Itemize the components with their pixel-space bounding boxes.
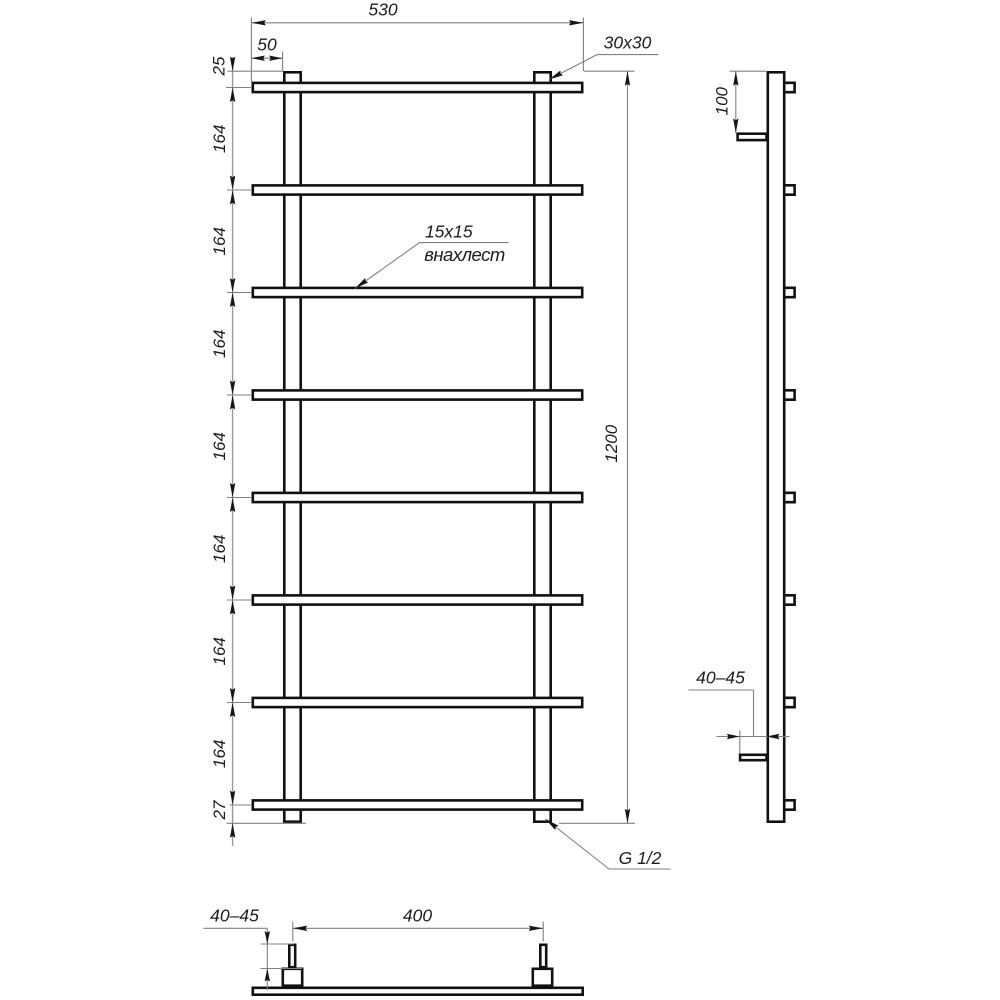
svg-text:100: 100 [713, 86, 732, 115]
svg-text:внахлест: внахлест [424, 244, 505, 265]
svg-text:164: 164 [210, 535, 229, 563]
svg-text:164: 164 [210, 432, 229, 460]
svg-text:164: 164 [210, 125, 229, 153]
svg-text:530: 530 [368, 0, 397, 20]
svg-text:164: 164 [210, 227, 229, 255]
svg-text:G 1/2: G 1/2 [619, 848, 662, 868]
svg-text:164: 164 [210, 740, 229, 768]
svg-text:50: 50 [257, 35, 277, 55]
svg-text:40–45: 40–45 [696, 668, 745, 688]
svg-text:27: 27 [210, 800, 229, 820]
svg-text:25: 25 [210, 56, 229, 76]
svg-text:1200: 1200 [602, 424, 621, 462]
svg-text:164: 164 [210, 637, 229, 665]
svg-text:15x15: 15x15 [425, 222, 473, 242]
svg-text:400: 400 [403, 906, 432, 926]
svg-text:30x30: 30x30 [604, 33, 652, 53]
svg-text:164: 164 [210, 330, 229, 358]
svg-text:40–45: 40–45 [210, 906, 259, 926]
